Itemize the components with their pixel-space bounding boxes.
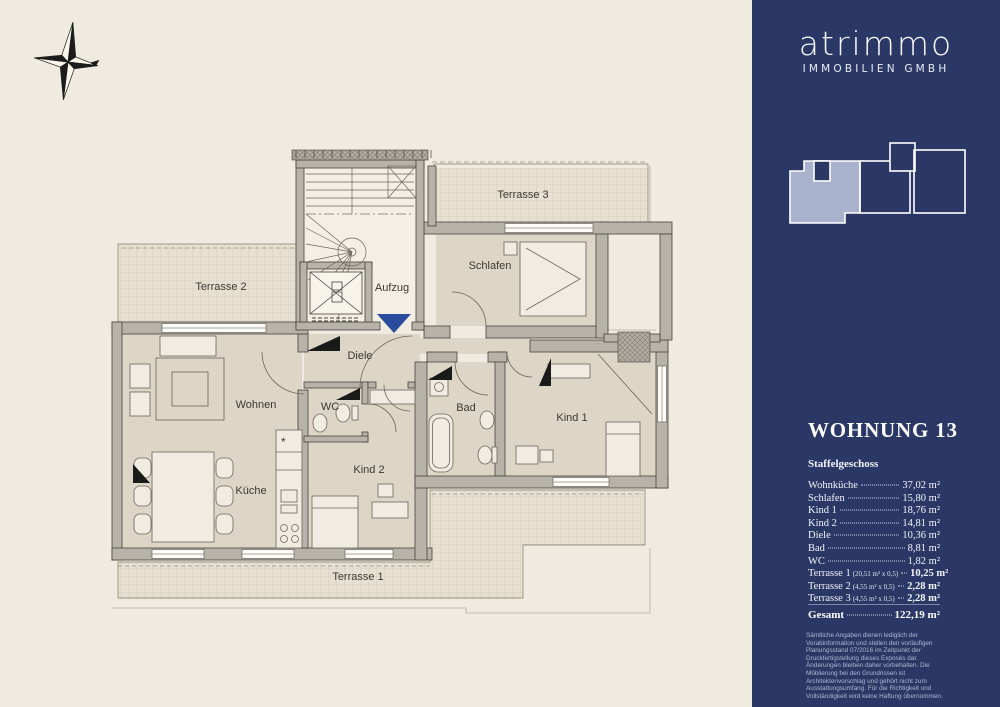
total-divider [808, 604, 940, 605]
area-row: Bad 8,81 m² [808, 543, 940, 556]
area-label: Terrasse 2 [808, 581, 851, 592]
area-value: 10,36 m² [902, 530, 940, 541]
room-label-wc: WC [321, 401, 339, 413]
brand-subtitle: IMMOBILIEN GMBH [752, 63, 1000, 75]
leader-dots [840, 522, 900, 523]
room-label-schlafen: Schlafen [469, 260, 512, 272]
room-label-kind1: Kind 1 [556, 412, 587, 424]
area-label: Kind 1 [808, 505, 837, 516]
sidebar: atrimmo IMMOBILIEN GMBH WOHNUNG 13 Staff… [752, 0, 1000, 707]
leader-dots [847, 615, 891, 616]
leader-dots [828, 547, 905, 548]
area-row: Terrasse 2 (4,55 m² x 0,5) 2,28 m² [808, 581, 940, 594]
area-label: Schlafen [808, 493, 845, 504]
leader-dots [828, 560, 905, 561]
area-row: Kind 1 18,76 m² [808, 505, 940, 518]
area-label: Wohnküche [808, 480, 858, 491]
area-value: 8,81 m² [908, 543, 940, 554]
leader-dots [898, 598, 904, 599]
area-list: Wohnküche 37,02 m² Schlafen 15,80 m² Kin… [808, 480, 940, 606]
leader-dots [898, 585, 904, 586]
brand-name: atrimmo [752, 27, 1000, 60]
room-label-kueche: Küche [235, 485, 266, 497]
elevator [310, 272, 362, 321]
room-label-bad: Bad [456, 402, 476, 414]
room-label-terrasse3: Terrasse 3 [497, 189, 548, 201]
stair-core-outline [890, 143, 915, 171]
building-footprint-minimap [774, 133, 974, 243]
area-note: (4,55 m² x 0,5) [853, 583, 895, 591]
area-row: Schlafen 15,80 m² [808, 493, 940, 506]
disclaimer-text: Sämtliche Angaben dienen lediglich der V… [806, 632, 948, 700]
area-label: Diele [808, 530, 831, 541]
area-label: WC [808, 556, 825, 567]
area-value: 1,82 m² [908, 556, 940, 567]
leader-dots [840, 510, 900, 511]
area-row: WC 1,82 m² [808, 556, 940, 569]
area-note: (4,55 m² x 0,5) [853, 595, 895, 603]
area-value: 37,02 m² [902, 480, 940, 491]
leader-dots [901, 573, 907, 574]
area-label: Terrasse 1 [808, 568, 851, 579]
area-row: Wohnküche 37,02 m² [808, 480, 940, 493]
floorplan-drawing: * Terrasse [0, 0, 752, 707]
area-value: 14,81 m² [902, 518, 940, 529]
neighbor-unit-outline-2 [914, 150, 965, 213]
room-label-terrasse2: Terrasse 2 [195, 281, 246, 293]
leader-dots [848, 497, 900, 498]
area-value: 15,80 m² [902, 493, 940, 504]
leader-dots [834, 535, 900, 536]
area-value: 2,28 m² [907, 581, 940, 592]
room-label-kind2: Kind 2 [353, 464, 384, 476]
entrance-arrow-icon [377, 314, 411, 333]
room-label-aufzug: Aufzug [375, 282, 409, 294]
compass-north-icon [30, 18, 104, 103]
kitchen-star-symbol: * [281, 435, 286, 449]
unit-floor-label: Staffelgeschoss [808, 458, 878, 470]
area-row: Diele 10,36 m² [808, 530, 940, 543]
room-label-terrasse1: Terrasse 1 [332, 571, 383, 583]
area-label: Bad [808, 543, 825, 554]
area-note: (20,51 m² x 0,5) [853, 570, 898, 578]
area-value: 2,28 m² [907, 593, 940, 604]
brand-logo: atrimmo IMMOBILIEN GMBH [752, 27, 1000, 75]
leader-dots [861, 485, 900, 486]
area-label: Terrasse 3 [808, 593, 851, 604]
area-row: Kind 2 14,81 m² [808, 518, 940, 531]
room-label-diele: Diele [347, 350, 372, 362]
area-value: 10,25 m² [910, 568, 948, 579]
unit-title: WOHNUNG 13 [808, 418, 958, 443]
floorplan-area: * Terrasse [0, 0, 752, 707]
area-row: Terrasse 1 (20,51 m² x 0,5) 10,25 m² [808, 568, 940, 581]
total-label: Gesamt [808, 609, 844, 621]
area-value: 18,76 m² [902, 505, 940, 516]
room-label-wohnen: Wohnen [236, 399, 277, 411]
area-label: Kind 2 [808, 518, 837, 529]
expose-page: * Terrasse [0, 0, 1000, 707]
total-value: 122,19 m² [895, 609, 940, 621]
unit-highlight-notch [814, 161, 830, 181]
total-row: Gesamt 122,19 m² [808, 609, 940, 621]
